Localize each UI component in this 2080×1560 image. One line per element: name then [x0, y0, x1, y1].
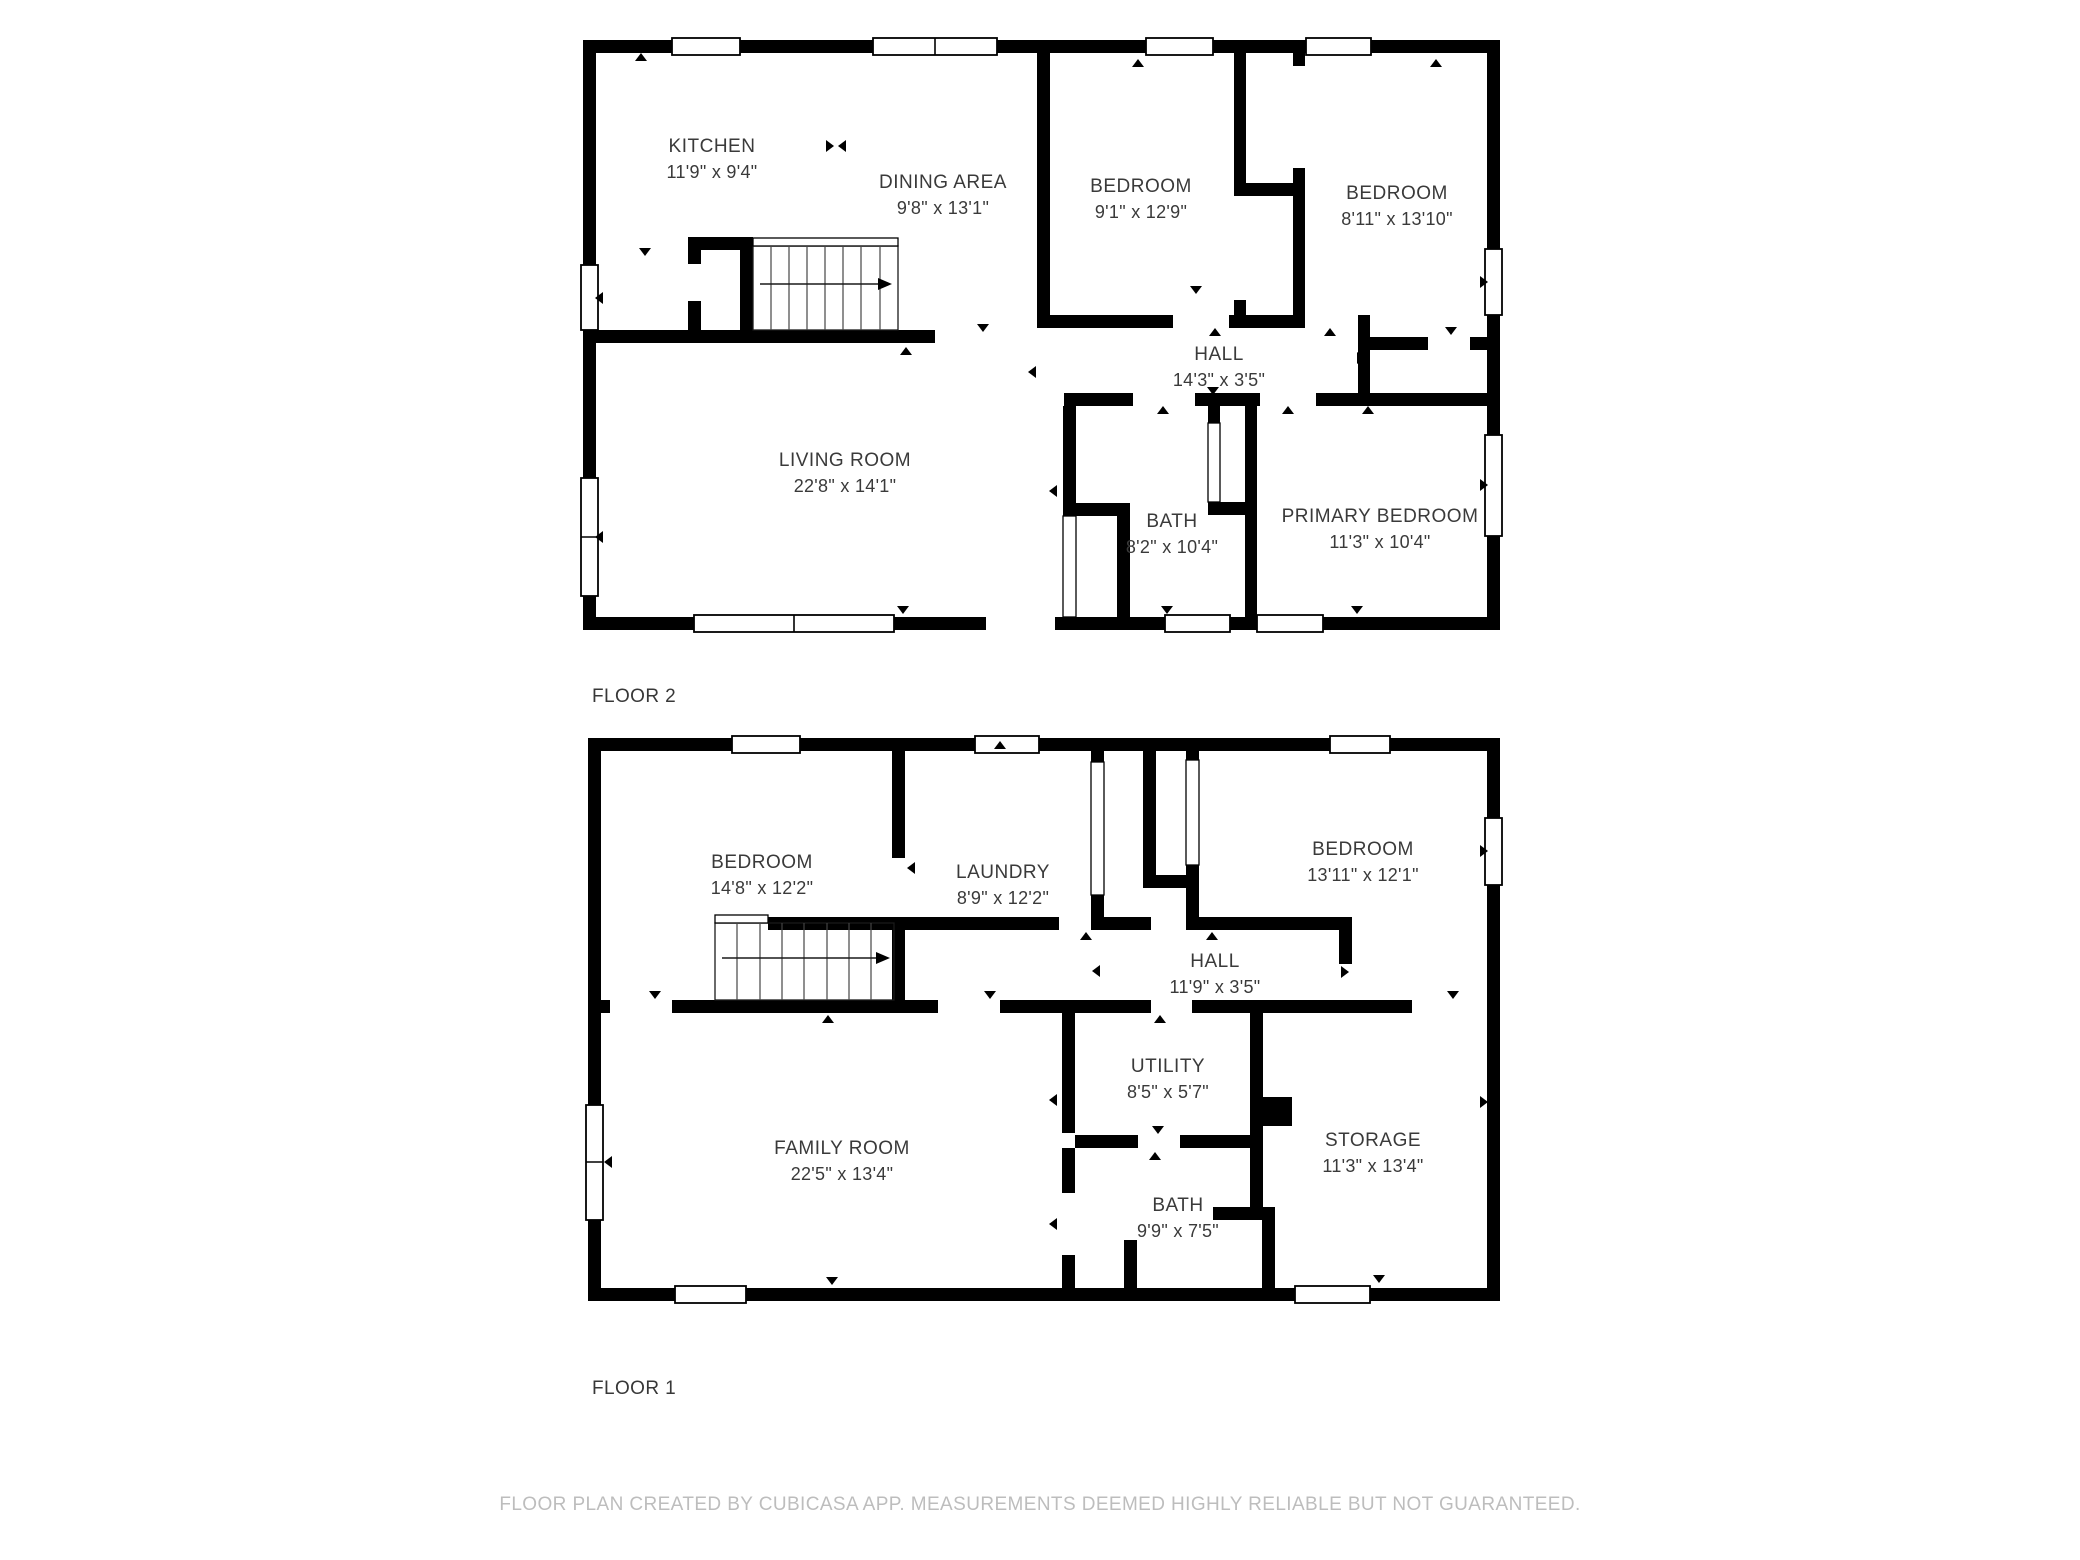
room-dims-hall: 14'3" x 3'5" — [1173, 370, 1265, 390]
footer-disclaimer: FLOOR PLAN CREATED BY CUBICASA APP. MEAS… — [499, 1494, 1580, 1515]
room-dims-bedroom-a: 14'8" x 12'2" — [711, 878, 814, 898]
room-dims-bedroom-b: 13'11" x 12'1" — [1307, 865, 1419, 885]
room-dims-kitchen: 11'9" x 9'4" — [667, 162, 758, 182]
room-label-bath: BATH — [1146, 511, 1197, 532]
floor2-stairs — [753, 238, 898, 330]
room-label-bedroom-b: BEDROOM — [1312, 839, 1414, 860]
room-dims-bath: 9'9" x 7'5" — [1137, 1221, 1219, 1241]
room-label-hall: HALL — [1194, 344, 1244, 365]
room-label-bedroom-b: BEDROOM — [1346, 183, 1448, 204]
floor-plan-drawing: KITCHEN 11'9" x 9'4" DINING AREA 9'8" x … — [0, 0, 2080, 1560]
room-label-storage: STORAGE — [1325, 1130, 1421, 1151]
room-dims-bedroom-b: 8'11" x 13'10" — [1341, 209, 1453, 229]
room-label-kitchen: KITCHEN — [669, 136, 756, 157]
room-dims-hall: 11'9" x 3'5" — [1170, 977, 1261, 997]
room-dims-bath: 8'2" x 10'4" — [1126, 537, 1218, 557]
room-dims-dining-area: 9'8" x 13'1" — [897, 198, 989, 218]
room-label-bedroom-a: BEDROOM — [711, 852, 813, 873]
floor2-label: FLOOR 2 — [592, 686, 676, 707]
stairs-direction-arrow — [876, 952, 890, 964]
appliance-block — [1263, 1097, 1292, 1126]
floor1-walls — [588, 738, 1500, 1301]
room-dims-primary-bedroom: 11'3" x 10'4" — [1329, 532, 1430, 552]
room-label-utility: UTILITY — [1131, 1056, 1205, 1077]
floor-plan-page: KITCHEN 11'9" x 9'4" DINING AREA 9'8" x … — [0, 0, 2080, 1560]
room-dims-storage: 11'3" x 13'4" — [1322, 1156, 1423, 1176]
room-label-bath: BATH — [1152, 1195, 1203, 1216]
room-label-primary-bedroom: PRIMARY BEDROOM — [1282, 506, 1479, 527]
room-label-bedroom-a: BEDROOM — [1090, 176, 1192, 197]
room-dims-laundry: 8'9" x 12'2" — [957, 888, 1049, 908]
room-label-living-room: LIVING ROOM — [779, 450, 911, 471]
floor2-plan: KITCHEN 11'9" x 9'4" DINING AREA 9'8" x … — [581, 38, 1502, 707]
room-label-family-room: FAMILY ROOM — [774, 1138, 910, 1159]
room-dims-utility: 8'5" x 5'7" — [1127, 1082, 1209, 1102]
room-label-dining-area: DINING AREA — [879, 172, 1007, 193]
floor1-plan: BEDROOM 14'8" x 12'2" LAUNDRY 8'9" x 12'… — [586, 736, 1502, 1399]
room-dims-family-room: 22'5" x 13'4" — [791, 1164, 894, 1184]
floor1-windows — [586, 736, 1502, 1303]
stairs-direction-arrow — [878, 278, 892, 290]
room-label-laundry: LAUNDRY — [956, 862, 1050, 883]
floor1-label: FLOOR 1 — [592, 1378, 676, 1399]
room-dims-bedroom-a: 9'1" x 12'9" — [1095, 202, 1187, 222]
room-label-hall: HALL — [1190, 951, 1240, 972]
room-dims-living-room: 22'8" x 14'1" — [794, 476, 897, 496]
